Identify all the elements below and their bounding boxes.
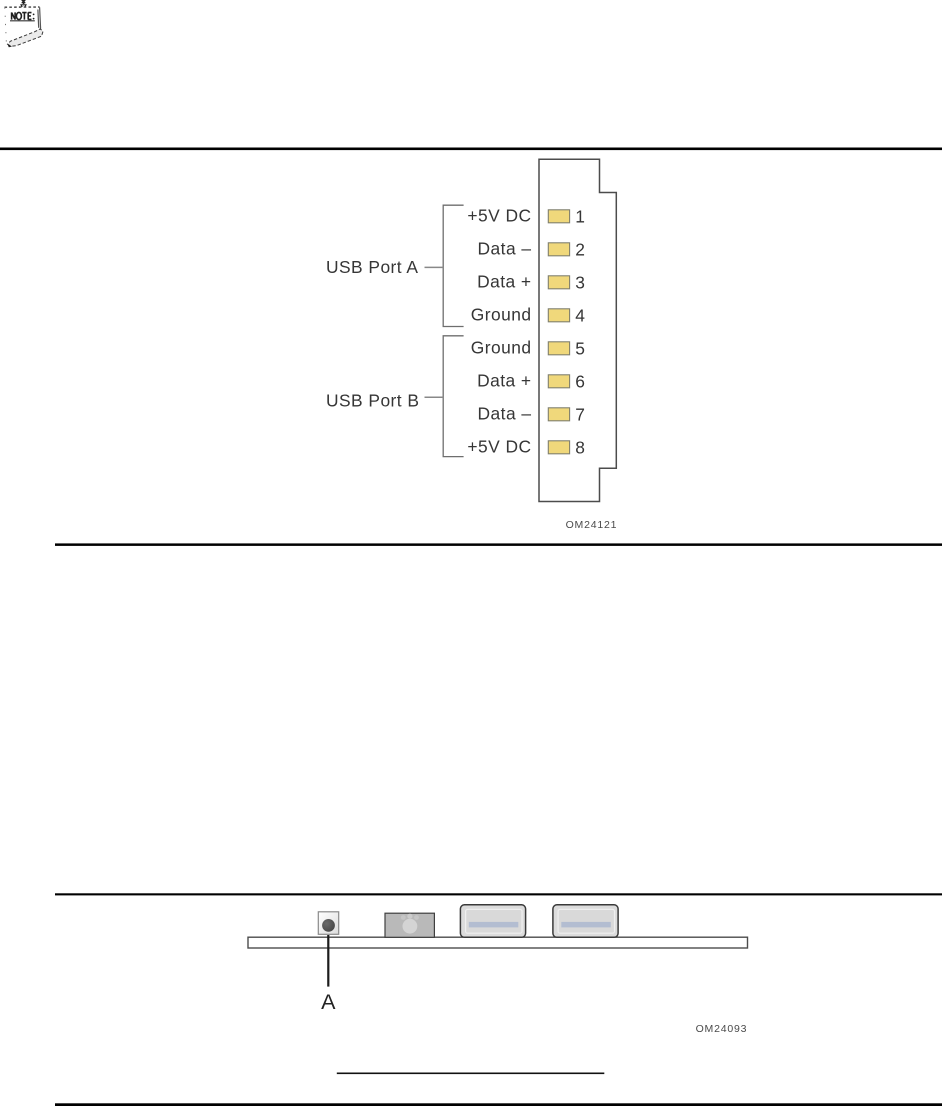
- svg-text:+5V DC: +5V DC: [467, 437, 531, 457]
- svg-text:OM24121: OM24121: [566, 519, 618, 531]
- svg-text:OM24093: OM24093: [696, 1023, 748, 1035]
- svg-text:Data –: Data –: [478, 239, 532, 259]
- svg-text:A: A: [321, 990, 336, 1014]
- svg-text:5: 5: [575, 339, 585, 359]
- svg-text:7: 7: [575, 405, 585, 425]
- svg-text:1: 1: [575, 207, 585, 227]
- svg-text:3: 3: [575, 273, 585, 293]
- svg-text:Data +: Data +: [477, 272, 531, 292]
- svg-text:Ground: Ground: [471, 305, 532, 325]
- svg-text:Data –: Data –: [478, 404, 532, 424]
- svg-text:Data +: Data +: [477, 371, 531, 391]
- svg-text:2: 2: [575, 240, 585, 260]
- svg-text:USB Port B: USB Port B: [326, 391, 419, 411]
- svg-text:Ground: Ground: [471, 338, 532, 358]
- svg-text:8: 8: [575, 438, 585, 458]
- svg-text:+5V DC: +5V DC: [467, 206, 531, 226]
- svg-text:USB Port A: USB Port A: [326, 257, 418, 277]
- svg-text:6: 6: [575, 372, 585, 392]
- svg-text:4: 4: [575, 306, 585, 326]
